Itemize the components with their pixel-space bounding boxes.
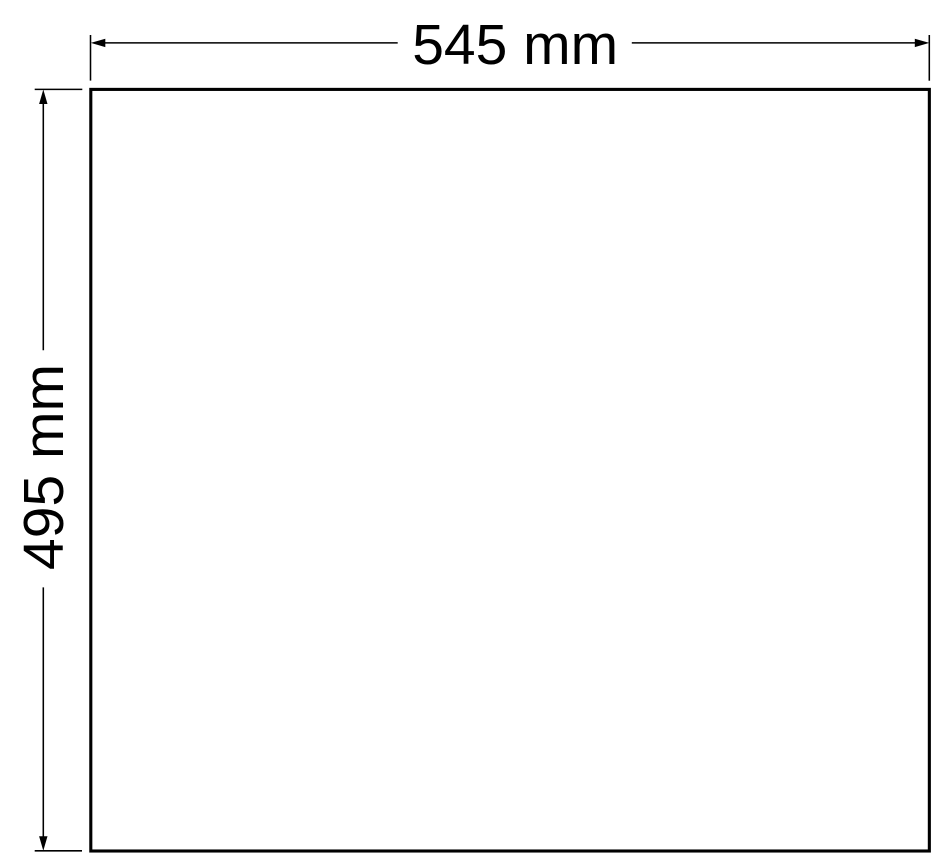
- svg-text:495 mm: 495 mm: [12, 364, 76, 570]
- svg-text:545 mm: 545 mm: [412, 13, 618, 77]
